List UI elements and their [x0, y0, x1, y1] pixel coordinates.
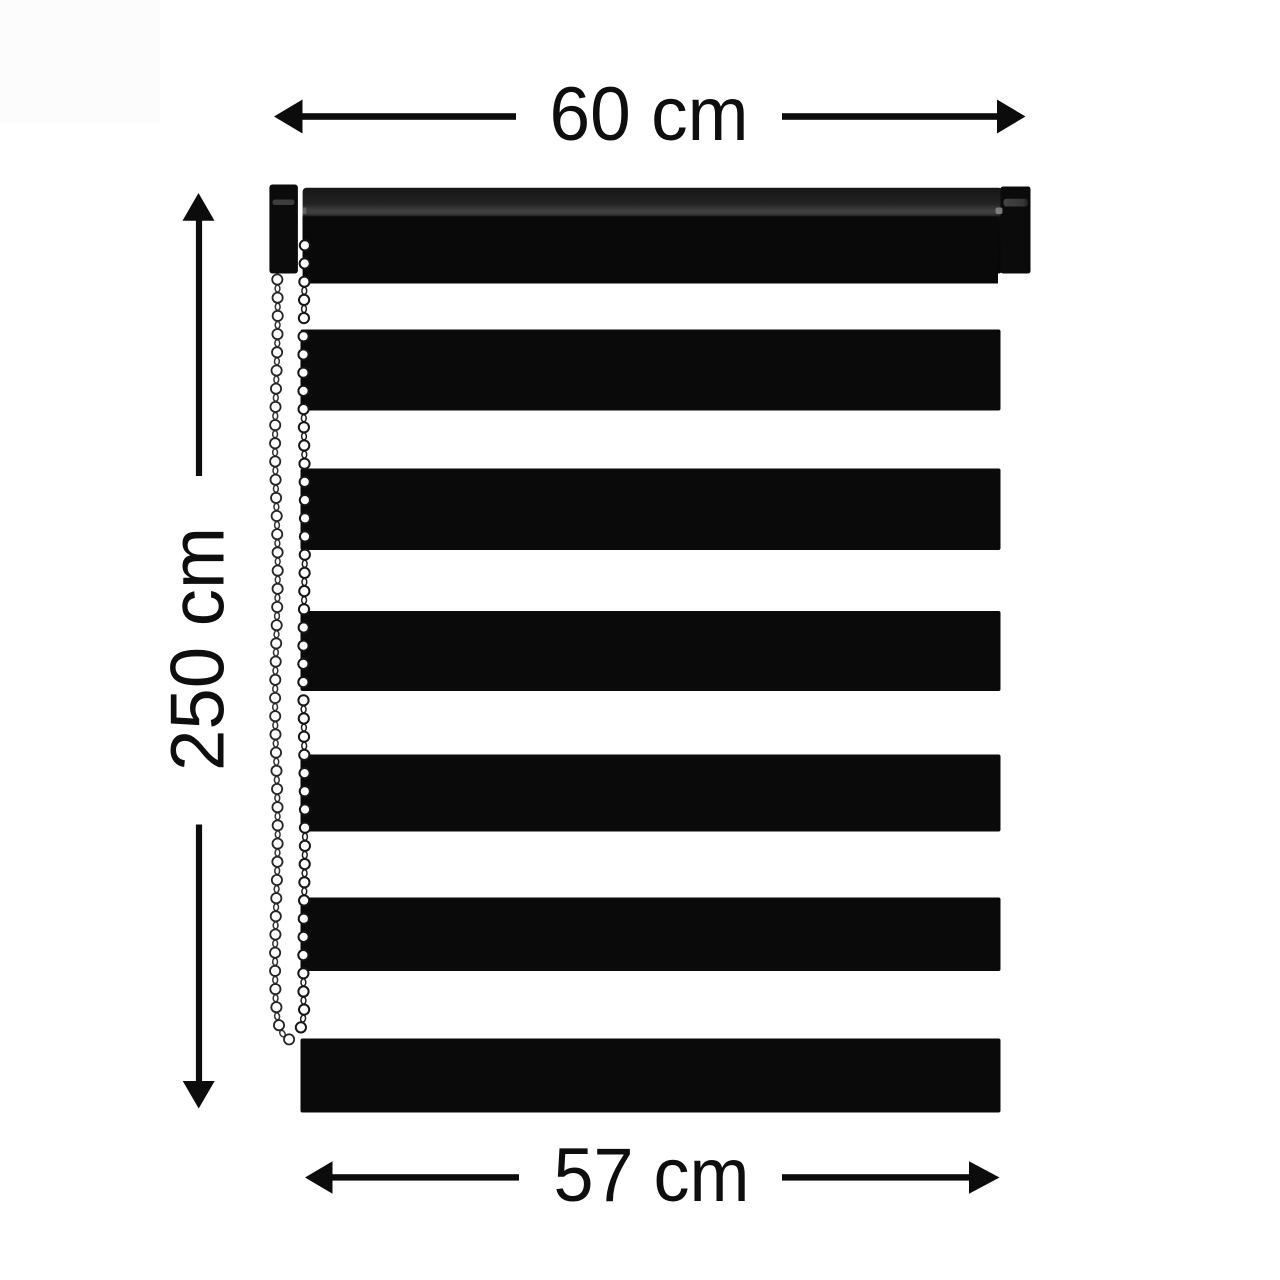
svg-text:250 cm: 250 cm — [156, 527, 241, 771]
svg-text:60 cm: 60 cm — [550, 72, 749, 157]
svg-text:57 cm: 57 cm — [554, 1133, 750, 1218]
